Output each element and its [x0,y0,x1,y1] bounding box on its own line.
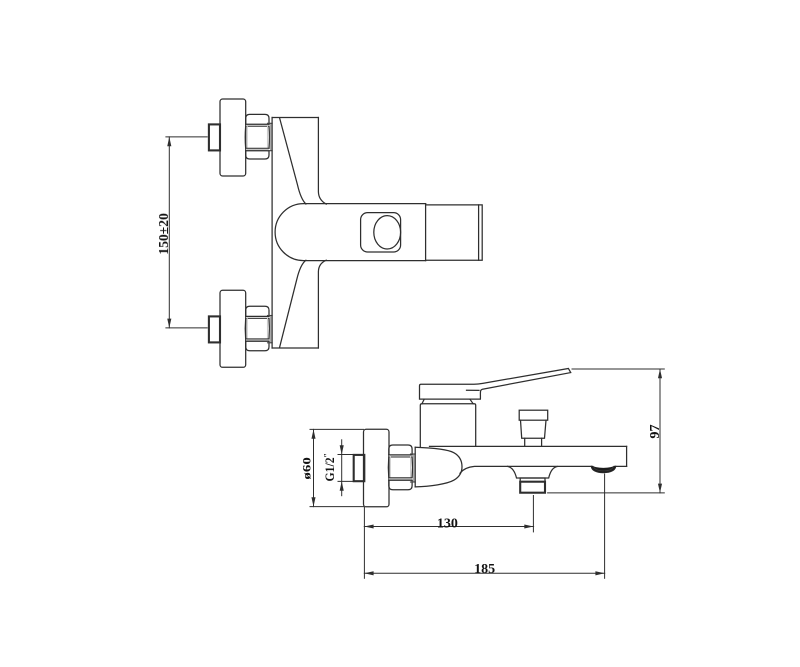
svg-text:ø60: ø60 [299,457,313,480]
svg-text:G1/2″: G1/2″ [322,453,337,482]
svg-text:150±20: 150±20 [157,213,172,255]
svg-text:130: 130 [437,517,458,532]
svg-text:185: 185 [474,562,495,577]
svg-text:97: 97 [648,424,663,438]
